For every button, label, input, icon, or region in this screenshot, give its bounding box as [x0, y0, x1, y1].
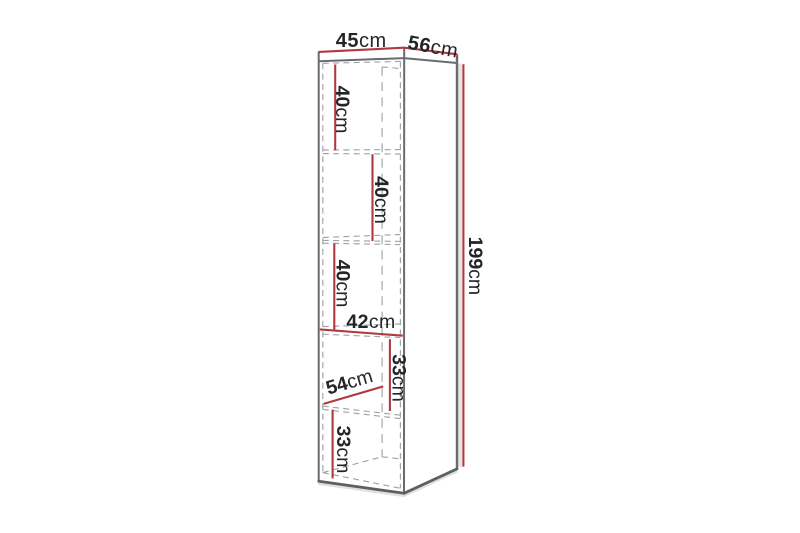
svg-text:42cm: 42cm [346, 311, 395, 333]
svg-text:199cm: 199cm [464, 237, 486, 296]
svg-text:56cm: 56cm [406, 32, 460, 63]
svg-text:54cm: 54cm [323, 365, 375, 400]
svg-text:33cm: 33cm [332, 426, 354, 474]
svg-text:40cm: 40cm [332, 260, 354, 308]
svg-text:40cm: 40cm [370, 176, 392, 224]
svg-text:33cm: 33cm [388, 354, 410, 402]
svg-text:45cm: 45cm [336, 30, 387, 52]
svg-text:40cm: 40cm [331, 86, 353, 134]
